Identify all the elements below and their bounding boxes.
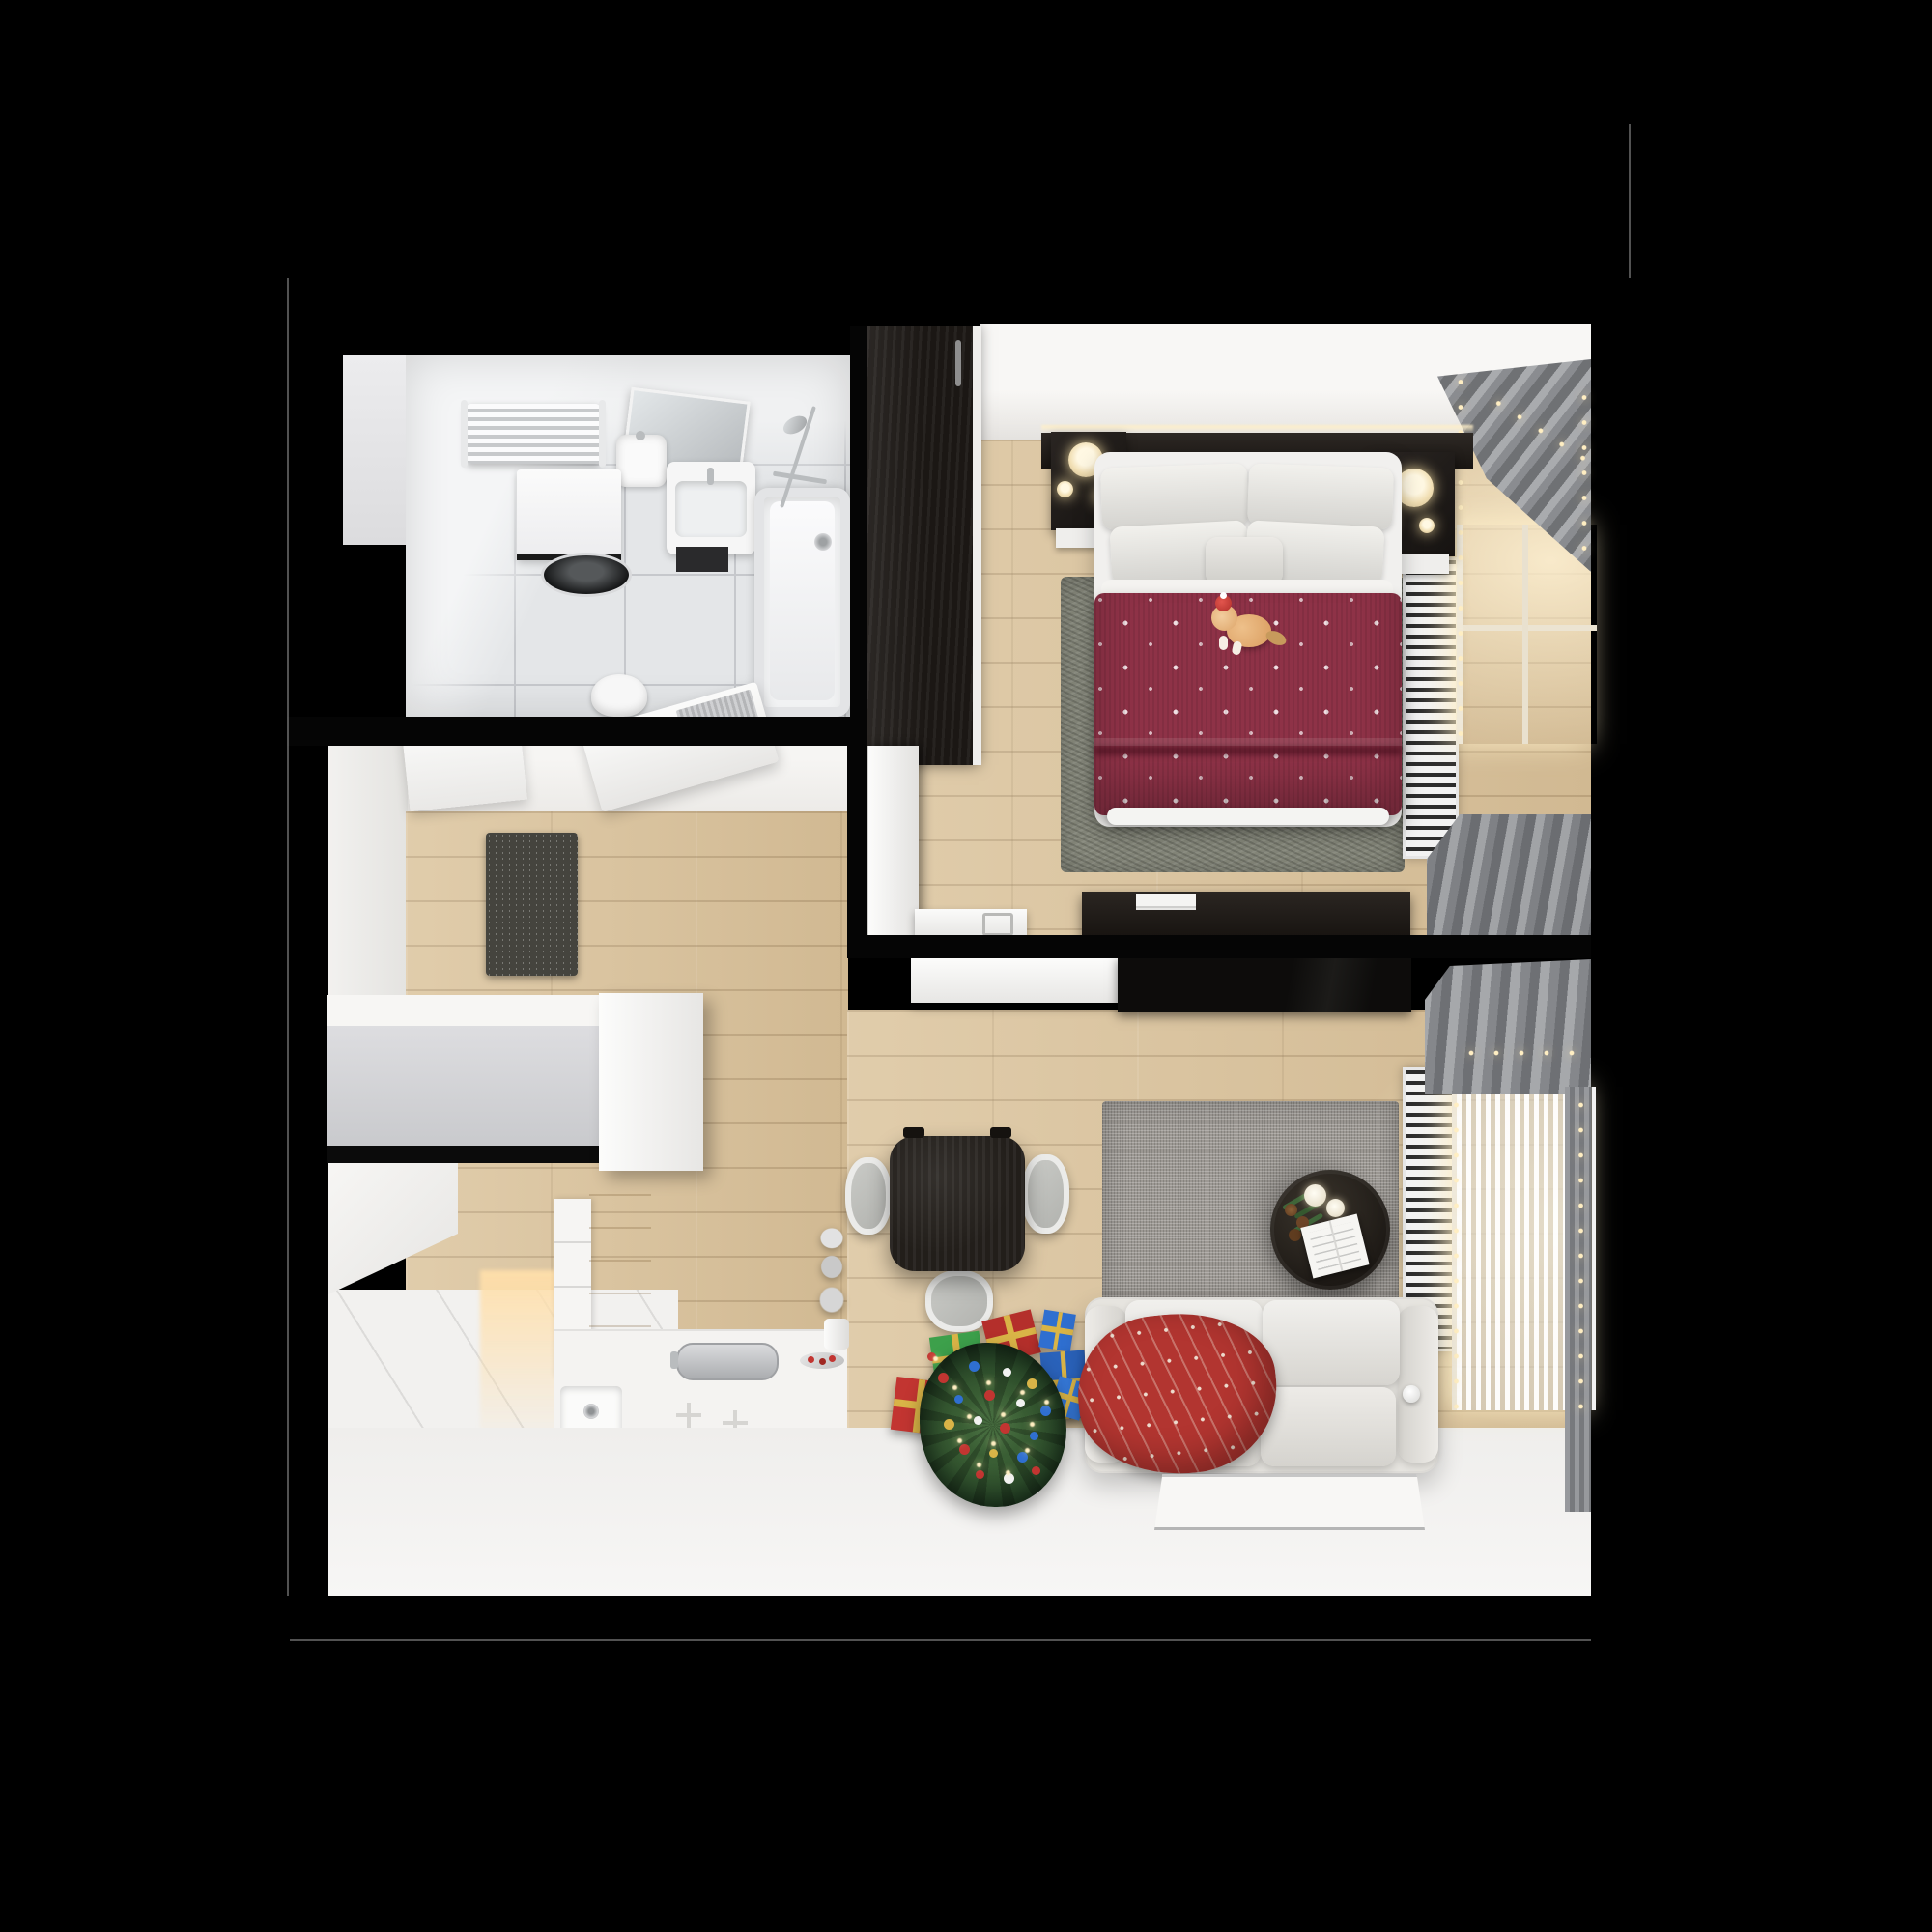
sofa-armrest (1398, 1306, 1438, 1463)
pillow (1110, 520, 1250, 584)
corgi-body (1227, 614, 1271, 647)
kitchen-sink (560, 1386, 622, 1436)
kitchen-white-floor (328, 1290, 678, 1596)
sideboard (911, 958, 1119, 1003)
bathtub-drain (814, 533, 832, 551)
bed-sheet (1101, 580, 1393, 605)
candle (1304, 1184, 1326, 1207)
nightstand-right (1370, 452, 1455, 556)
kitchen-counter (554, 1331, 852, 1468)
bed-footboard (1107, 808, 1389, 825)
tree-ornaments (927, 1352, 936, 1361)
corner-sink (616, 435, 667, 487)
christmas-tree (920, 1343, 1066, 1507)
coffee-table (1270, 1170, 1390, 1290)
headboard-backlight (1041, 425, 1473, 433)
living-rug (1102, 1101, 1399, 1302)
living-floor-vent (1403, 1067, 1456, 1351)
figurine (1143, 980, 1158, 992)
pinecones (1285, 1204, 1297, 1216)
santa-hat-icon (1215, 595, 1232, 611)
sofa-armrest (1085, 1306, 1127, 1463)
media-console (1082, 892, 1410, 944)
candle (1379, 513, 1395, 528)
living-curtain-top (1425, 959, 1591, 1094)
washing-machine-drum (541, 553, 632, 597)
baubles-plate (800, 1352, 844, 1369)
corgi-head (1211, 605, 1237, 631)
apartment-render (0, 0, 1932, 1932)
peninsula-counter-top (327, 995, 607, 1028)
washing-machine (517, 469, 621, 560)
string-lights (1449, 1096, 1463, 1415)
bedroom-door (867, 746, 919, 939)
vanity-sink (667, 462, 755, 554)
candle (1419, 518, 1435, 533)
wardrobe (867, 326, 973, 765)
wall-hall-bedroom (847, 717, 867, 958)
bedroom-window (1457, 525, 1597, 744)
string-lights (1577, 388, 1591, 557)
candle (1395, 469, 1434, 507)
wall-bedroom-living (847, 935, 1591, 958)
magazine (1300, 1214, 1369, 1279)
books (1136, 894, 1196, 906)
living-room (0, 0, 1932, 1932)
hallway-wood-floor (406, 811, 848, 1432)
bed (1094, 452, 1402, 827)
string-lights (1574, 1096, 1588, 1415)
sofa (1085, 1297, 1438, 1473)
tree-lights (933, 1356, 938, 1361)
outer-edge-line-bottom (290, 1639, 1591, 1641)
living-wood-floor (847, 1010, 1591, 1432)
sunlight-glow (1256, 440, 1591, 758)
dining-chair (925, 1270, 993, 1332)
bathroom-mirror (621, 387, 751, 484)
lower-cabinet-face (328, 1159, 458, 1294)
corgi-tail (1264, 628, 1288, 648)
gift-box-red (891, 1377, 947, 1435)
white-bauble (1403, 1385, 1420, 1403)
corgi-paw (1232, 640, 1243, 656)
kitchen-left-wall (328, 723, 408, 1005)
living-window (1452, 1087, 1596, 1410)
peninsula-end-panel (599, 993, 703, 1171)
bedroom-top-wall (980, 324, 1591, 444)
toilet (591, 674, 647, 717)
dining-table (890, 1136, 1025, 1271)
gift-box-blue (1038, 1310, 1076, 1352)
towel-radiator (466, 404, 601, 464)
kitchen-top-wall (328, 723, 850, 819)
headboard (1041, 433, 1473, 469)
candle (1326, 1199, 1345, 1217)
bedroom-curtain-top (1437, 359, 1591, 572)
bathtub (754, 488, 850, 717)
pillow (1100, 463, 1249, 529)
outer-edge-line-left (287, 278, 289, 1596)
sofa-back-cushion (1263, 1300, 1400, 1385)
gift-box-blue (1040, 1350, 1090, 1420)
sofa-seat-cushion (1261, 1387, 1396, 1466)
small-pillow (1206, 537, 1283, 585)
range-hood (580, 682, 779, 812)
sofa-back-cushion (1125, 1300, 1263, 1385)
kitchen-runner-rug (486, 833, 578, 976)
mini-tree-pot (824, 1319, 849, 1350)
string-lights (1476, 385, 1605, 475)
fir-sprigs (1282, 1190, 1313, 1210)
vanity-cabinet (676, 547, 728, 572)
induction-hob-mark (676, 1403, 701, 1428)
red-throw (1070, 1304, 1285, 1485)
silver-mini-tree (811, 1219, 852, 1325)
pillow (1247, 463, 1394, 529)
living-curtain-right (1565, 1087, 1591, 1512)
corgi-santa (1209, 597, 1285, 657)
kitchen-hallway (0, 0, 1932, 1932)
pillow (1245, 520, 1385, 584)
bedroom (0, 0, 1932, 1932)
sunlight-glow (1333, 1053, 1591, 1430)
wall-shelf (915, 909, 1027, 937)
living-white-floor (328, 1428, 1591, 1596)
nightstand-left (1051, 432, 1126, 530)
upper-cabinet (402, 721, 527, 811)
bedroom-curtain-bottom (1427, 814, 1591, 942)
corgi-paw (1219, 636, 1228, 650)
bedroom-wood-floor (867, 440, 1591, 939)
bedroom-rug (1061, 577, 1405, 872)
floor-mat (1154, 1474, 1425, 1530)
outer-edge-line-topright (1629, 124, 1631, 278)
bathroom-wall-panel (343, 355, 406, 545)
string-lights (1453, 372, 1468, 744)
wardrobe-edge (973, 326, 981, 765)
gift-box-red (981, 1309, 1041, 1364)
peninsula-base (327, 1146, 607, 1163)
bedroom-floor-vent (1403, 557, 1459, 859)
string-lights (1452, 1045, 1591, 1061)
figurine (1120, 972, 1136, 986)
shower-hose (780, 406, 816, 508)
under-cabinet-light (480, 1270, 559, 1449)
shower-head-icon (781, 412, 810, 438)
walls (0, 0, 1932, 1932)
candle (1068, 442, 1103, 477)
stainless-inset (676, 1343, 779, 1380)
dining-chair (845, 1157, 892, 1235)
wall-bathroom-bottom (287, 717, 852, 746)
dining-chair (1022, 1154, 1069, 1234)
peninsula-front (327, 1026, 607, 1146)
drawer-column (554, 1199, 591, 1377)
kitchen-wood-wall (589, 1128, 651, 1341)
candle (1094, 488, 1110, 504)
wall-bedroom-left (850, 326, 867, 746)
gift-box-blue (1049, 1376, 1090, 1420)
duvet (1094, 593, 1402, 815)
bathroom (0, 0, 1932, 1932)
shower-bar (773, 471, 827, 485)
candle (1057, 481, 1073, 497)
sofa-seat-cushion (1125, 1387, 1261, 1466)
induction-hob-mark (723, 1410, 748, 1435)
bathroom-floor (406, 355, 850, 717)
gift-box-green (929, 1331, 985, 1385)
tv-panel (1118, 956, 1411, 1012)
